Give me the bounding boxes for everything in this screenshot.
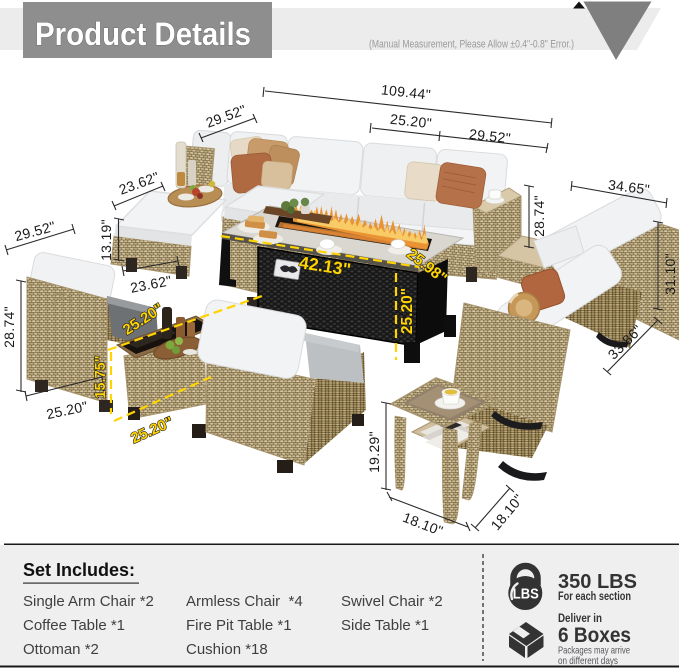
svg-text:19.29": 19.29": [366, 431, 382, 473]
svg-text:350 LBS: 350 LBS: [558, 570, 637, 593]
svg-text:Ottoman *2: Ottoman *2: [23, 641, 99, 658]
svg-text:on different days: on different days: [558, 655, 618, 667]
svg-text:For each section: For each section: [558, 591, 631, 603]
svg-text:Swivel Chair *2: Swivel Chair *2: [341, 593, 443, 610]
svg-text:15.75": 15.75": [93, 355, 109, 398]
svg-text:13.19": 13.19": [98, 219, 114, 261]
svg-text:Single Arm Chair *2: Single Arm Chair *2: [23, 593, 154, 610]
svg-text:LBS: LBS: [513, 587, 539, 603]
svg-text:28.74": 28.74": [1, 306, 17, 348]
svg-text:Product Details: Product Details: [35, 16, 251, 52]
svg-text:Armless Chair *4: Armless Chair *4: [186, 593, 303, 610]
svg-text:Fire Pit Table *1: Fire Pit Table *1: [186, 617, 292, 634]
svg-text:Side Table *1: Side Table *1: [341, 617, 429, 634]
svg-text:31.10": 31.10": [662, 253, 678, 295]
svg-text:Coffee Table *1: Coffee Table *1: [23, 617, 125, 634]
svg-text:6 Boxes: 6 Boxes: [558, 623, 631, 647]
svg-text:Set Includes:: Set Includes:: [23, 560, 135, 580]
svg-text:Cushion *18: Cushion *18: [186, 641, 268, 658]
svg-text:28.74": 28.74": [531, 195, 547, 237]
svg-text:25.20": 25.20": [399, 288, 416, 334]
svg-text:(Manual Measurement, Please Al: (Manual Measurement, Please Allow ±0.4"-…: [369, 39, 574, 51]
